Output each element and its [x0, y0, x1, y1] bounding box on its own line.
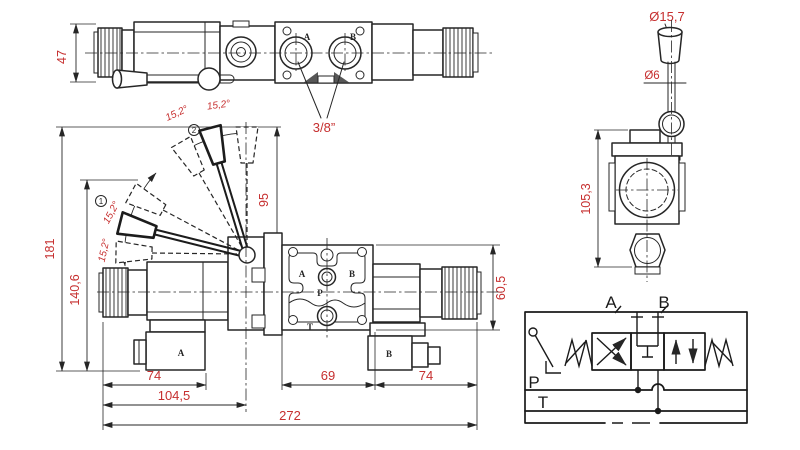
face-port-b-label: B [349, 269, 355, 279]
hex-nut [630, 234, 665, 267]
lever-pivot-ball [239, 247, 255, 263]
dim-shaft-diameter: Ø6 [644, 70, 686, 83]
dim-95-label: 95 [257, 193, 271, 207]
top-view-body: A B [94, 21, 478, 90]
dim-shaft-diameter-label: Ø6 [644, 70, 659, 82]
side-lever [658, 28, 684, 161]
dim-74-right-label: 74 [419, 368, 433, 383]
position-1-marker: 1 [96, 196, 107, 207]
lever-ball-top [198, 68, 220, 90]
dim-105-3-label: 105,3 [579, 183, 593, 214]
top-view: 47 [55, 21, 492, 135]
dim-272-label: 272 [279, 408, 301, 423]
spring-right-icon [705, 340, 733, 366]
connector-a: A [134, 320, 205, 370]
lever-knob-1 [117, 212, 156, 238]
svg-text:2: 2 [192, 126, 197, 135]
dim-140-6-label: 140,6 [68, 274, 82, 305]
dim-47-label: 47 [55, 50, 69, 64]
dim-181-label: 181 [43, 239, 57, 260]
connector-b-label: B [386, 349, 392, 359]
dim-knob-diameter-label: Ø15,7 [649, 9, 684, 24]
position-2-marker: 2 [189, 125, 200, 136]
schematic-right-position [664, 333, 705, 370]
dim-69-label: 69 [321, 368, 335, 383]
angle-top-right-label: 15,2° [206, 98, 231, 112]
dim-60-5-label: 60,5 [494, 276, 508, 300]
connector-a-label: A [178, 348, 185, 358]
schematic-port-t-label: T [538, 393, 548, 412]
dim-74-left-label: 74 [147, 368, 161, 383]
lever-knob-side [658, 28, 682, 37]
svg-text:1: 1 [99, 197, 104, 206]
right-solenoid-coil [373, 264, 420, 322]
side-view: Ø15,7 Ø6 [579, 9, 686, 282]
thread-label: 3/8” [313, 120, 335, 135]
schematic-port-a-label: A [605, 293, 617, 312]
angle-top-left-label: 15,2° [164, 104, 190, 124]
face-port-p-label: P [317, 288, 323, 298]
left-coil-knurl [103, 268, 128, 317]
face-port-a-label: A [299, 269, 306, 279]
angle-left-lower-label: 15,2° [97, 238, 113, 263]
left-solenoid-coil [147, 262, 228, 320]
front-view: 181 140,6 95 15,2° 15,2° 15,2° 15,2° 2 [43, 98, 508, 430]
lever-knob-2 [199, 125, 224, 164]
spring-left-icon [565, 340, 592, 366]
technical-drawing: 47 [0, 0, 800, 450]
right-coil-knurl [442, 267, 477, 319]
hydraulic-schematic: A B [525, 293, 747, 423]
port-b-label-top: B [350, 32, 356, 42]
port-a-label-top: A [304, 32, 311, 42]
face-port-t-label: T [307, 322, 313, 332]
drawing-canvas: 47 [0, 0, 800, 450]
lever-symbol-icon [529, 328, 561, 373]
dim-104-5-label: 104,5 [158, 388, 191, 403]
